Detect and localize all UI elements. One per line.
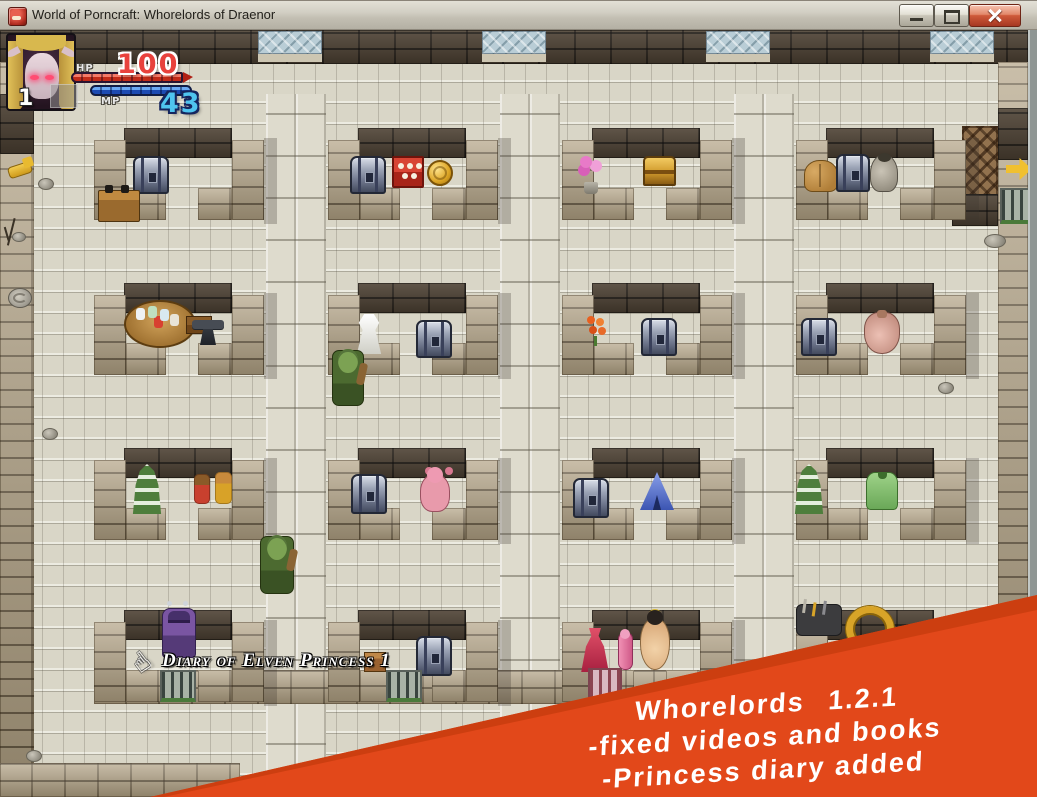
maximize-button[interactable] <box>934 4 969 27</box>
bottom-wall <box>0 763 240 797</box>
room-wall <box>232 140 264 220</box>
room-wall <box>900 343 934 375</box>
nude-girl[interactable] <box>640 618 670 670</box>
room-wall <box>828 188 868 220</box>
pink-teddy[interactable] <box>420 474 450 512</box>
wall-shadow <box>264 138 277 224</box>
game-viewport[interactable] <box>0 30 1028 797</box>
room-wall <box>828 670 868 702</box>
dark-tools <box>796 604 842 636</box>
wall-shadow <box>498 458 511 544</box>
item-tooltip-text: Diary of Elven Princess 1 <box>162 650 391 672</box>
room-wall <box>700 622 732 702</box>
orc-npc[interactable] <box>332 350 364 406</box>
room-wall <box>900 508 934 540</box>
pink-orchid[interactable] <box>578 156 606 194</box>
wall-shadow <box>498 293 511 379</box>
room-wall <box>466 622 498 702</box>
room-wall <box>358 128 466 158</box>
app-icon <box>8 7 27 26</box>
gate[interactable] <box>386 670 422 702</box>
hp-value: 100 <box>117 49 179 80</box>
wall-shadow <box>966 620 979 706</box>
metal-chest[interactable] <box>836 154 870 192</box>
pebble <box>26 750 42 762</box>
room-wall <box>94 295 126 375</box>
gate[interactable] <box>1000 188 1028 224</box>
room-wall <box>198 188 232 220</box>
mp-label: MP <box>101 96 120 107</box>
green-shirt[interactable] <box>866 472 898 510</box>
minimize-icon <box>910 18 923 21</box>
room-wall <box>666 508 700 540</box>
room-wall <box>466 140 498 220</box>
anvil[interactable] <box>192 316 224 350</box>
room-wall <box>94 460 126 540</box>
dungeon-room <box>94 448 264 540</box>
tnt-crate[interactable] <box>392 156 424 188</box>
room-wall <box>358 610 466 640</box>
room-wall <box>828 508 868 540</box>
metal-chest[interactable] <box>350 156 386 194</box>
title-bar[interactable]: World of Porncraft: Whorelords of Draeno… <box>0 0 1037 30</box>
gold-chest[interactable] <box>643 156 676 186</box>
close-button[interactable] <box>969 4 1021 27</box>
metal-chest[interactable] <box>641 318 677 356</box>
orange-flowers[interactable] <box>583 314 609 346</box>
room-wall <box>666 670 700 702</box>
gate-pink[interactable] <box>588 668 622 698</box>
wall-shadow <box>732 620 745 706</box>
wall-shadow <box>264 293 277 379</box>
player-level: 1 <box>18 86 33 111</box>
room-wall <box>232 460 264 540</box>
room-wall <box>934 622 966 702</box>
room-wall <box>934 295 966 375</box>
pebble <box>984 234 1006 248</box>
minimize-button[interactable] <box>899 4 934 27</box>
glowing-eye-icon <box>45 75 54 80</box>
gray-sack[interactable] <box>870 154 898 192</box>
room-wall <box>700 295 732 375</box>
room-wall <box>700 140 732 220</box>
pink-rod[interactable] <box>618 632 633 670</box>
hay-sacks[interactable] <box>804 160 838 192</box>
window-title: World of Porncraft: Whorelords of Draeno… <box>32 7 275 22</box>
metal-chest[interactable] <box>133 156 169 194</box>
room-wall <box>594 343 634 375</box>
wall-shadow <box>966 293 979 379</box>
wall-window <box>482 31 546 62</box>
room-wall <box>432 188 466 220</box>
room-wall <box>466 460 498 540</box>
wall-shadow <box>264 458 277 544</box>
right-wall-dark-section <box>998 108 1028 160</box>
room-wall <box>592 283 700 313</box>
wall-window <box>258 31 322 62</box>
pebble <box>38 178 54 190</box>
room-wall <box>934 140 966 220</box>
hp-label: HP <box>76 63 94 74</box>
wall-shadow <box>732 293 745 379</box>
alchemy-table[interactable] <box>124 300 196 348</box>
wall-shadow <box>732 458 745 544</box>
room-wall <box>900 670 934 702</box>
orc-npc[interactable] <box>260 536 294 594</box>
wall-shadow <box>498 620 511 706</box>
wall-window <box>706 31 770 62</box>
room-wall <box>124 128 232 158</box>
room-wall <box>826 283 934 313</box>
maximize-icon <box>944 10 960 24</box>
room-wall <box>592 448 700 478</box>
wall-shadow <box>966 458 979 544</box>
room-wall <box>94 622 126 702</box>
metal-chest[interactable] <box>351 474 387 514</box>
player-hud: 1 HP 100 MP 43 <box>0 30 220 120</box>
glowing-eye-icon <box>30 75 39 80</box>
metal-chest[interactable] <box>416 320 452 358</box>
room-wall <box>900 188 934 220</box>
wall-shadow <box>732 138 745 224</box>
room-wall <box>358 283 466 313</box>
room-wall <box>232 295 264 375</box>
metal-chest[interactable] <box>573 478 609 518</box>
room-wall <box>934 460 966 540</box>
room-wall <box>666 188 700 220</box>
room-wall <box>432 508 466 540</box>
room-wall <box>700 460 732 540</box>
wall-window <box>930 31 994 62</box>
gate[interactable] <box>160 670 196 702</box>
portrait-hair <box>16 35 66 51</box>
wall-shadow <box>498 138 511 224</box>
wall-shadow <box>966 138 979 224</box>
application-window: 1 HP 100 MP 43 ☝ Diary of Elven Princess… <box>0 0 1037 797</box>
gold-coin[interactable] <box>427 160 453 186</box>
room-wall <box>198 670 232 702</box>
window-frame-strip <box>1028 30 1037 797</box>
stone-swirl <box>8 288 32 308</box>
room-wall <box>466 295 498 375</box>
mp-value: 43 <box>160 88 202 119</box>
plush-pair[interactable] <box>192 472 234 508</box>
metal-chest[interactable] <box>801 318 837 356</box>
status-chip <box>50 84 78 108</box>
room-wall <box>198 508 232 540</box>
pebble <box>42 428 58 440</box>
pebble <box>938 382 954 394</box>
gold-horn[interactable] <box>846 606 894 652</box>
wood-table[interactable] <box>98 190 140 222</box>
room-wall <box>592 128 700 158</box>
pink-sack[interactable] <box>864 312 900 354</box>
